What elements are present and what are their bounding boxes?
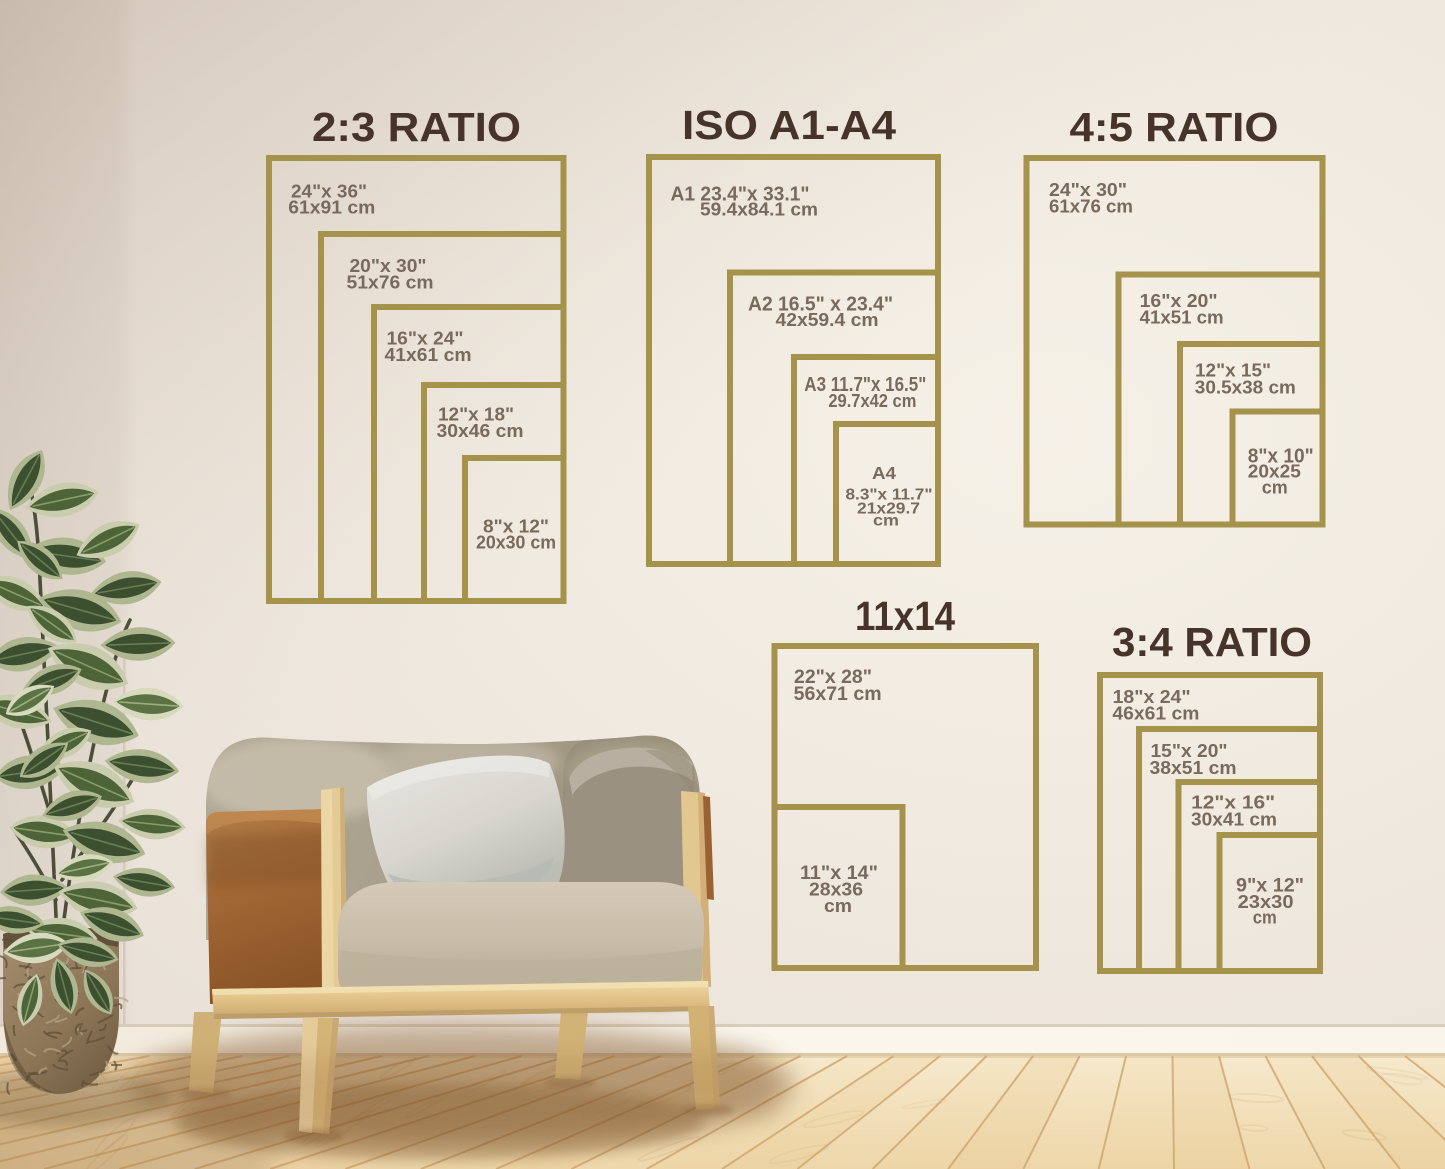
- svg-text:61x91 cm: 61x91 cm: [288, 196, 375, 217]
- svg-text:cm: cm: [873, 513, 899, 530]
- svg-text:30x46 cm: 30x46 cm: [437, 420, 524, 441]
- svg-text:42x59.4 cm: 42x59.4 cm: [776, 309, 879, 330]
- svg-text:A4: A4: [872, 463, 896, 483]
- svg-text:3:4 RATIO: 3:4 RATIO: [1112, 619, 1312, 665]
- svg-text:cm: cm: [1262, 477, 1288, 498]
- svg-text:cm: cm: [1253, 907, 1277, 928]
- svg-text:20x30 cm: 20x30 cm: [476, 532, 556, 553]
- svg-text:41x51 cm: 41x51 cm: [1140, 307, 1224, 328]
- svg-text:56x71 cm: 56x71 cm: [794, 684, 882, 705]
- svg-text:61x76 cm: 61x76 cm: [1049, 196, 1133, 217]
- svg-text:4:5 RATIO: 4:5 RATIO: [1070, 104, 1279, 150]
- svg-text:51x76 cm: 51x76 cm: [347, 272, 434, 293]
- svg-text:46x61 cm: 46x61 cm: [1112, 703, 1199, 724]
- svg-text:38x51 cm: 38x51 cm: [1150, 757, 1237, 778]
- svg-text:30x41 cm: 30x41 cm: [1191, 808, 1277, 829]
- svg-text:29.7x42 cm: 29.7x42 cm: [828, 390, 916, 411]
- svg-text:11x14: 11x14: [855, 593, 955, 639]
- svg-text:cm: cm: [824, 895, 852, 916]
- svg-text:ISO A1-A4: ISO A1-A4: [682, 102, 896, 148]
- svg-text:30.5x38 cm: 30.5x38 cm: [1195, 376, 1296, 397]
- svg-text:2:3 RATIO: 2:3 RATIO: [312, 104, 521, 150]
- svg-text:59.4x84.1 cm: 59.4x84.1 cm: [700, 199, 818, 220]
- svg-text:41x61 cm: 41x61 cm: [385, 344, 472, 365]
